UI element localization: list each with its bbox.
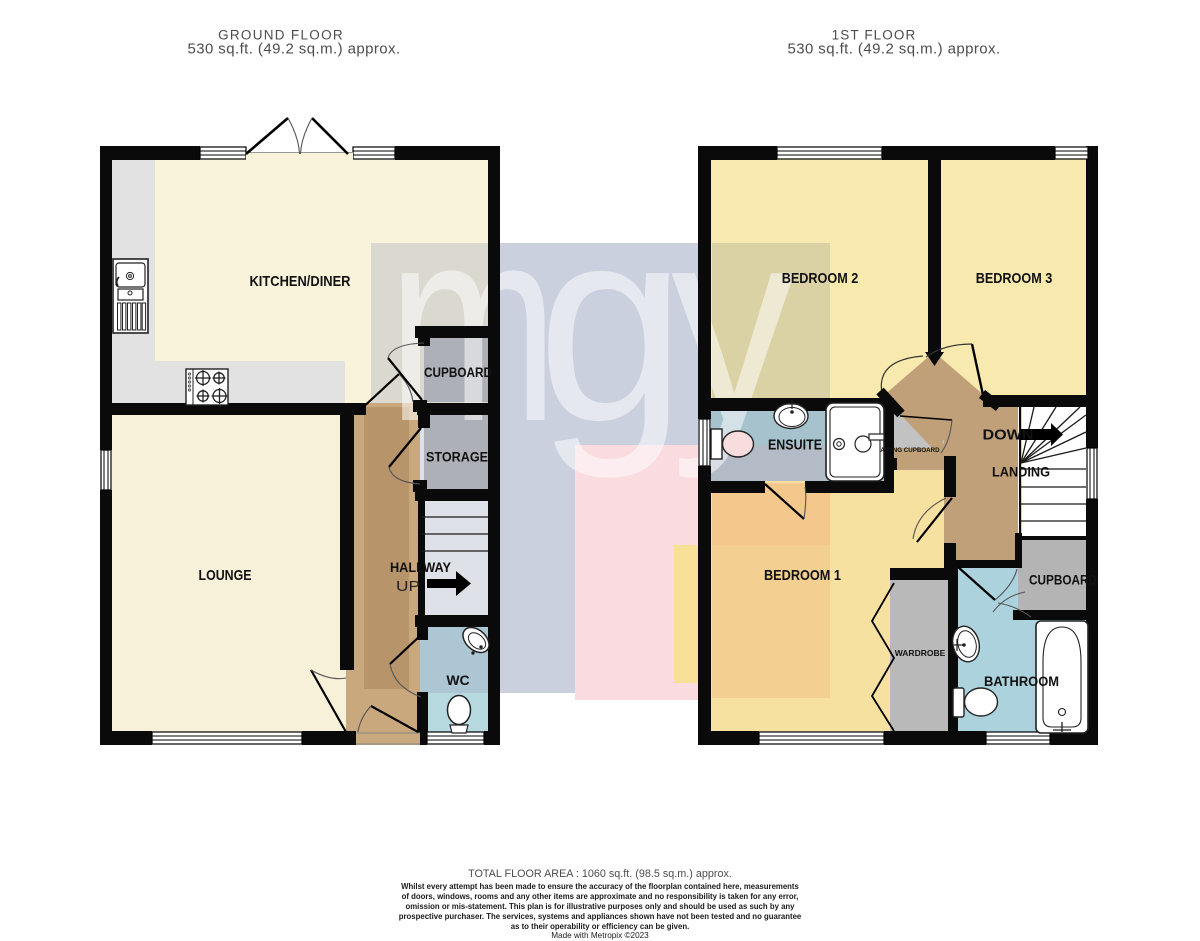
svg-text:BEDROOM 1: BEDROOM 1 xyxy=(764,567,841,584)
svg-text:530 sq.ft. (49.2 sq.m.) approx: 530 sq.ft. (49.2 sq.m.) approx. xyxy=(787,41,1000,58)
svg-text:WARDROBE: WARDROBE xyxy=(895,648,946,658)
svg-text:LOUNGE: LOUNGE xyxy=(199,568,252,584)
svg-text:of doors, windows, rooms and a: of doors, windows, rooms and any other i… xyxy=(402,892,799,901)
svg-text:as to their operability or eff: as to their operability or efficiency ca… xyxy=(511,922,690,931)
svg-text:WC: WC xyxy=(446,672,469,688)
svg-text:Made with Metropix ©2023: Made with Metropix ©2023 xyxy=(551,931,649,940)
svg-text:AIRING CUPBOARD: AIRING CUPBOARD xyxy=(880,447,940,454)
svg-text:LANDING: LANDING xyxy=(992,465,1050,481)
svg-text:g: g xyxy=(537,169,686,481)
svg-text:530 sq.ft. (49.2 sq.m.) approx: 530 sq.ft. (49.2 sq.m.) approx. xyxy=(187,41,400,58)
svg-text:omission or mis-statement. Thi: omission or mis-statement. This plan is … xyxy=(405,902,795,911)
svg-text:DOWN: DOWN xyxy=(983,427,1034,444)
svg-text:m: m xyxy=(388,168,558,479)
svg-text:BEDROOM 2: BEDROOM 2 xyxy=(782,270,859,287)
svg-text:HALLWAY: HALLWAY xyxy=(390,560,451,576)
svg-text:Whilst every attempt has been: Whilst every attempt has been made to en… xyxy=(401,882,799,891)
svg-text:CUPBOARD: CUPBOARD xyxy=(1029,573,1097,589)
svg-text:STORAGE: STORAGE xyxy=(426,450,488,466)
svg-text:KITCHEN/DINER: KITCHEN/DINER xyxy=(250,274,351,290)
svg-text:TOTAL FLOOR AREA : 1060 sq.ft.: TOTAL FLOOR AREA : 1060 sq.ft. (98.5 sq.… xyxy=(468,868,732,880)
svg-text:UP: UP xyxy=(396,578,420,595)
svg-text:CUPBOARD: CUPBOARD xyxy=(424,365,492,381)
svg-text:BATHROOM: BATHROOM xyxy=(984,674,1059,690)
svg-text:prospective purchaser. The ser: prospective purchaser. The services, sys… xyxy=(399,912,802,921)
svg-text:ENSUITE: ENSUITE xyxy=(768,438,822,454)
svg-text:BEDROOM 3: BEDROOM 3 xyxy=(976,270,1053,287)
